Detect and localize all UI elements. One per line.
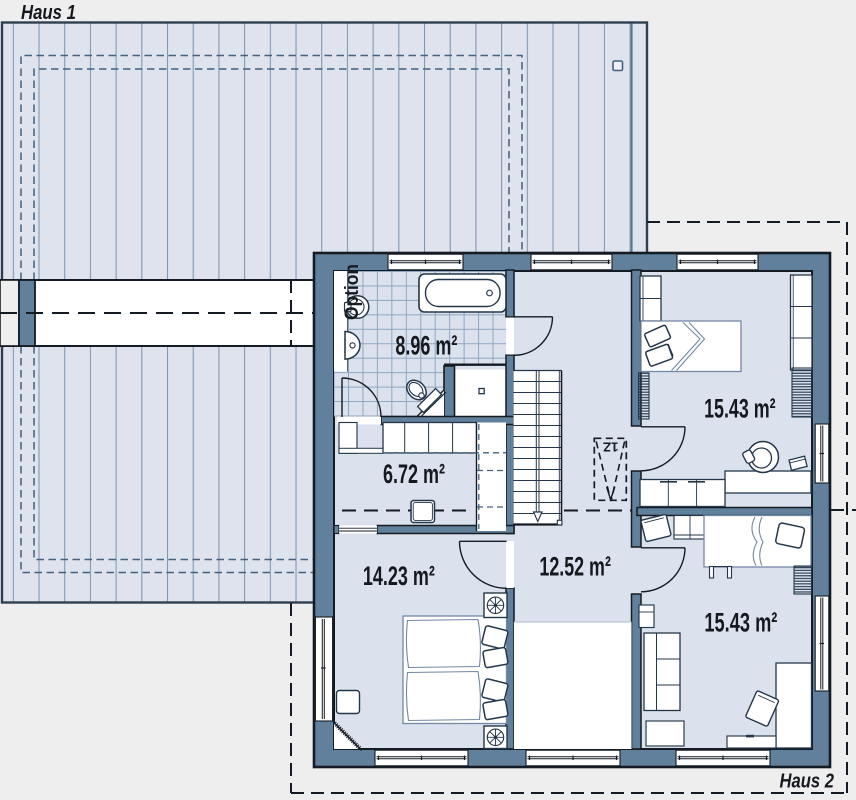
svg-text:8.96 m²: 8.96 m² — [395, 330, 457, 360]
svg-text:15.43 m²: 15.43 m² — [704, 607, 777, 637]
svg-text:1Z: 1Z — [603, 440, 619, 455]
svg-text:6.72 m²: 6.72 m² — [383, 459, 445, 489]
svg-text:Haus 2: Haus 2 — [780, 771, 835, 793]
svg-text:14.23 m²: 14.23 m² — [363, 561, 435, 591]
svg-text:Option: Option — [342, 264, 363, 320]
svg-text:12.52 m²: 12.52 m² — [539, 551, 611, 581]
svg-text:Haus 1: Haus 1 — [21, 2, 76, 24]
svg-text:15.43 m²: 15.43 m² — [704, 394, 776, 424]
